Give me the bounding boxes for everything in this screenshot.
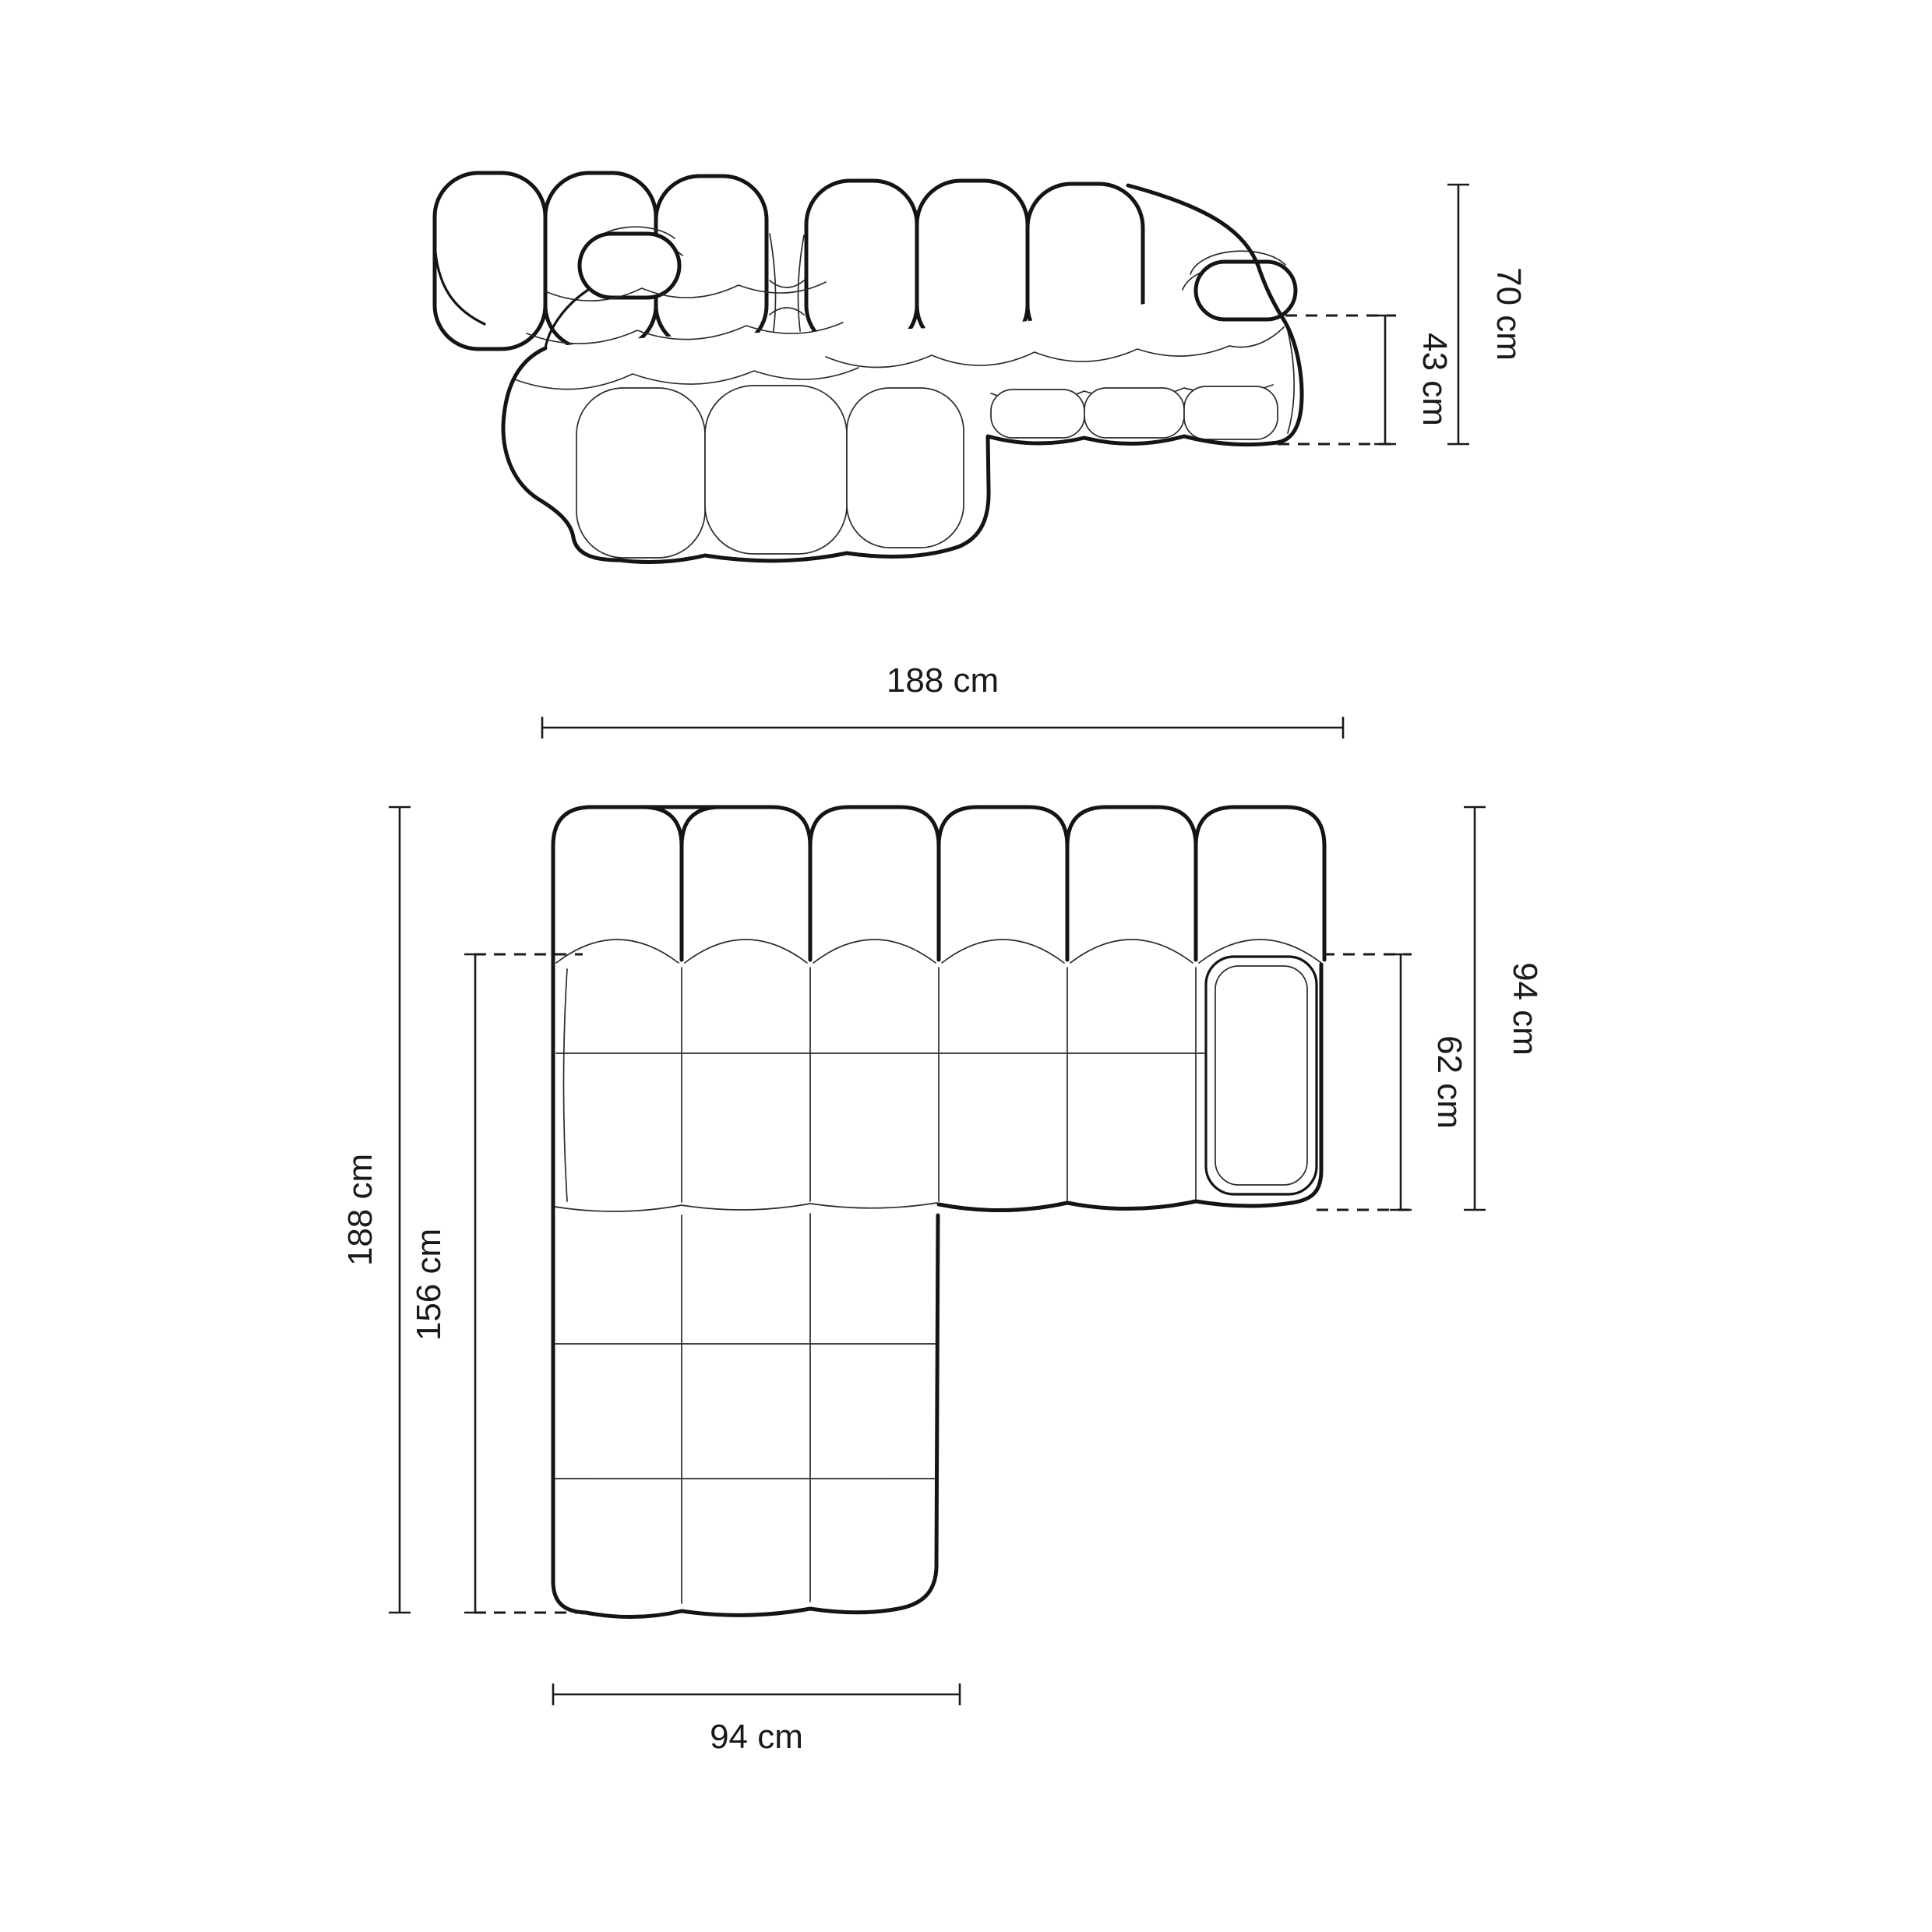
seat-cushion [991,390,1084,438]
plan-chaise-outline [553,960,938,1617]
dim-label-right-side-depth: 94 cm [1506,962,1544,1056]
perspective-view: 70 cm 43 cm [435,173,1528,562]
dim-armrest-height: 43 cm [1278,316,1454,444]
dim-total-width: 188 cm [542,661,1343,739]
tuft-seam [770,234,775,337]
dim-chaise-width: 94 cm [553,1683,960,1756]
plan-view: 188 cm 188 cm 156 cm 94 cm [341,661,1544,1756]
seat-cushion [1184,386,1278,439]
dim-label-seat-depth: 62 cm [1430,1035,1468,1129]
dim-seat-depth: 62 cm [1317,954,1468,1210]
armrest-outline [1206,957,1317,1194]
plan-back-cushions [553,807,1324,963]
dim-label-chaise-depth: 156 cm [410,1229,448,1341]
plan-back-cushion [1067,807,1196,960]
plan-seat-seams [556,968,1204,1202]
left-bolster-seam [564,969,568,1201]
armrest-pad [1196,262,1296,319]
plan-right-armrest [1206,957,1317,1194]
sofa-dimension-diagram: 70 cm 43 cm [0,0,1932,1932]
chaise-cushion [847,388,964,548]
diagram-svg: 70 cm 43 cm [0,0,1932,1932]
dim-right-side-depth: 94 cm [1464,807,1544,1210]
plan-back-cushion [939,807,1067,960]
back-cushion [435,173,545,349]
chaise-top-seam [555,1203,937,1211]
plan-back-cushion [810,807,939,960]
plan-front-edge [939,964,1321,1211]
chaise-cushion [705,386,847,554]
dim-label-armrest-height: 43 cm [1416,333,1454,426]
dim-label-overall-height: 70 cm [1490,267,1528,361]
dim-label-total-width: 188 cm [887,661,999,700]
plan-back-cushion [682,807,810,960]
dim-label-total-depth: 188 cm [341,1154,379,1266]
armrest-pad [580,234,679,298]
seat-cushion [1084,388,1184,438]
tuft-seam [799,235,804,337]
chaise-cushion [576,388,705,558]
plan-back-cushion [1196,807,1324,960]
front-cushions [576,386,1278,558]
plan-back-cushion [553,807,682,960]
dim-label-chaise-width: 94 cm [710,1718,803,1756]
dim-total-depth: 188 cm [341,807,411,1613]
dim-overall-height: 70 cm [1447,185,1528,444]
plan-chaise-seams [555,1214,936,1603]
corner-tuft-seams [770,234,804,337]
back-cushion [806,181,917,349]
armrest-inner-seam [1215,966,1307,1185]
